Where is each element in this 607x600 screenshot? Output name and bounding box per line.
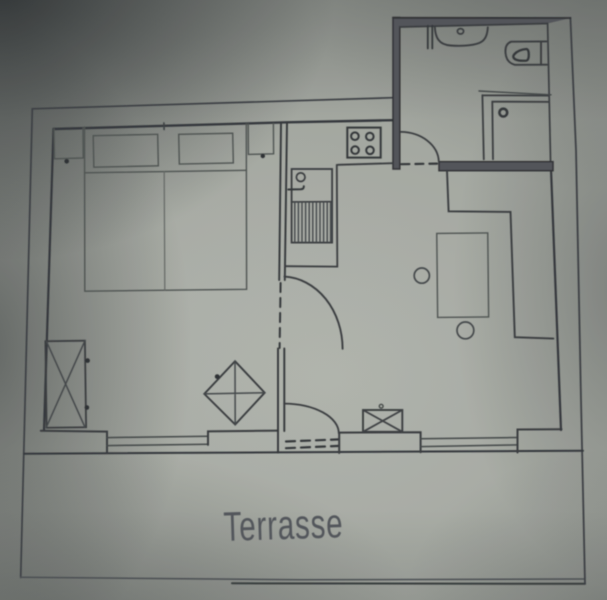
svg-text:Terrasse: Terrasse — [223, 499, 344, 550]
